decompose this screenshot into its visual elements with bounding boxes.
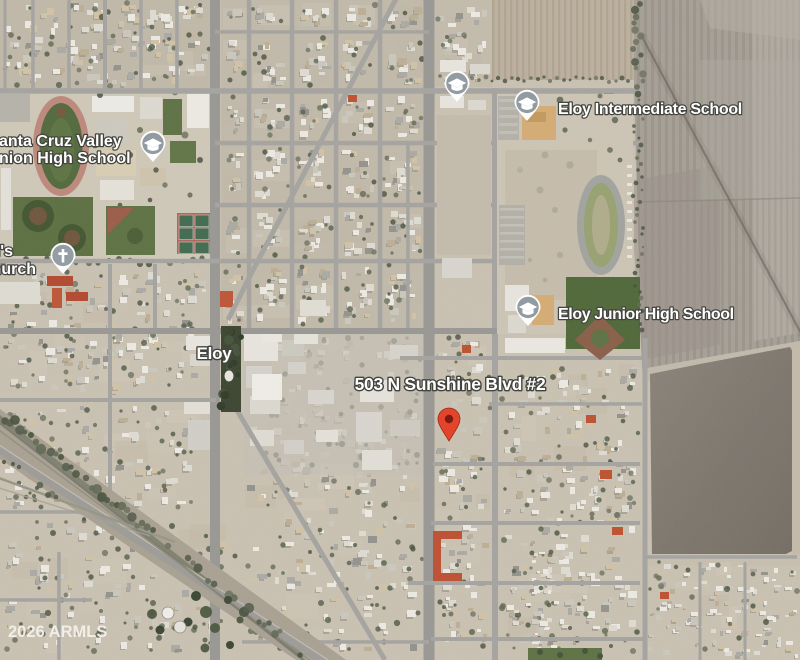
svg-text:Union High School: Union High School xyxy=(0,150,131,167)
svg-text:2026 ARMLS: 2026 ARMLS xyxy=(8,623,107,641)
svg-text:Eloy Intermediate School: Eloy Intermediate School xyxy=(558,101,742,118)
svg-text:n's: n's xyxy=(0,243,13,260)
svg-text:Eloy: Eloy xyxy=(196,344,232,363)
svg-text:503 N Sunshine Blvd #2: 503 N Sunshine Blvd #2 xyxy=(355,374,546,394)
svg-text:hurch: hurch xyxy=(0,261,36,278)
svg-text:Santa Cruz Valley: Santa Cruz Valley xyxy=(0,133,122,150)
svg-text:Eloy Junior High School: Eloy Junior High School xyxy=(558,306,734,323)
